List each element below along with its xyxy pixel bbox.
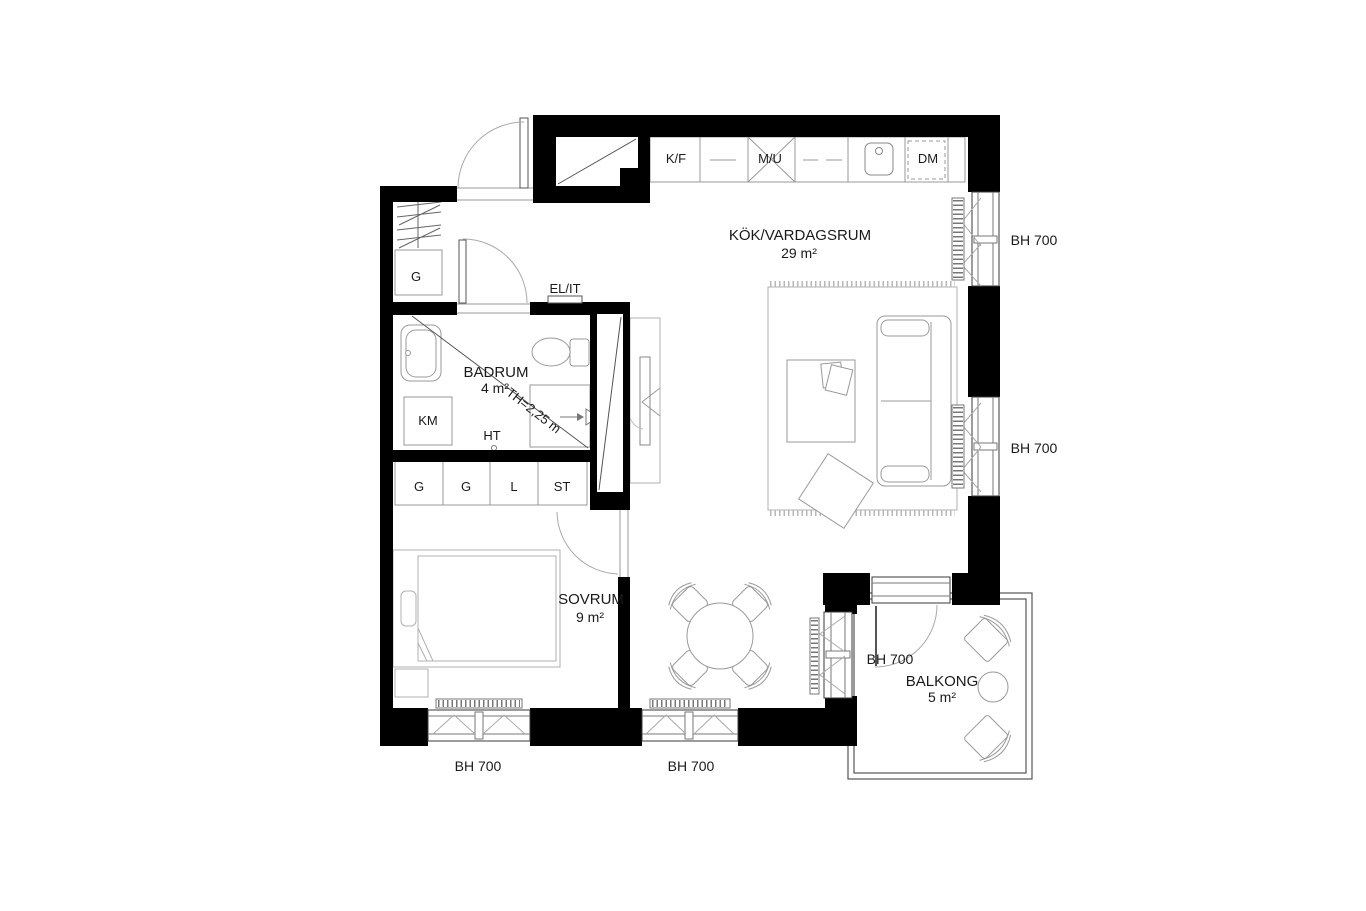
toilet-bowl-icon bbox=[532, 338, 570, 366]
linen-closet-label: L bbox=[510, 479, 517, 494]
kitchen-living-name: KÖK/VARDAGSRUM bbox=[729, 226, 871, 244]
window-dining bbox=[642, 699, 738, 741]
window-bedroom bbox=[428, 699, 530, 741]
tv-bench bbox=[629, 318, 660, 483]
balcony-table bbox=[978, 672, 1008, 702]
bedside-table bbox=[395, 669, 428, 697]
ventilation-shaft-top bbox=[556, 137, 638, 186]
balcony-name: BALKONG bbox=[906, 673, 979, 690]
cleaning-closet-label: ST bbox=[554, 479, 571, 494]
faucet-icon bbox=[876, 148, 883, 155]
sofa bbox=[877, 316, 951, 486]
window-mullion bbox=[974, 443, 997, 450]
floor-plan: KÖK/VARDAGSRUM 29 m² SOVRUM 9 m² BADRUM … bbox=[0, 0, 1366, 911]
bed-pillow bbox=[401, 591, 416, 626]
door-frame bbox=[872, 577, 950, 603]
bathroom-name: BADRUM bbox=[463, 364, 528, 381]
bh700-label-bottom-1: BH 700 bbox=[455, 758, 502, 774]
coffee-table bbox=[787, 360, 855, 442]
window-right-1 bbox=[952, 192, 999, 286]
towel-dryer-label: HT bbox=[483, 428, 500, 443]
hall-wardrobe-label: G bbox=[411, 269, 421, 284]
fridge-freezer-label: K/F bbox=[666, 151, 686, 166]
sofa-armrest-bottom bbox=[881, 466, 929, 482]
electrical-cabinet-label: EL/IT bbox=[549, 281, 580, 296]
window-right-2 bbox=[952, 397, 999, 496]
bedroom-name: SOVRUM bbox=[558, 591, 624, 608]
shaft-notch bbox=[620, 168, 638, 186]
window-mullion bbox=[475, 712, 483, 739]
bh700-label-right-2: BH 700 bbox=[1011, 440, 1058, 456]
window-nook bbox=[810, 612, 852, 698]
bh700-label-bottom-2: BH 700 bbox=[668, 758, 715, 774]
bed bbox=[393, 550, 560, 667]
ventilation-shaft-column bbox=[597, 314, 623, 492]
dishwasher-label: DM bbox=[918, 151, 938, 166]
tv-icon bbox=[640, 357, 650, 445]
dining-table bbox=[687, 603, 753, 669]
window-mullion bbox=[685, 712, 693, 739]
door-leaf bbox=[459, 240, 466, 303]
washing-machine-label: KM bbox=[418, 413, 438, 428]
balcony-area: 5 m² bbox=[928, 689, 956, 705]
wardrobe-1-label: G bbox=[414, 479, 424, 494]
bh700-label-right-1: BH 700 bbox=[1011, 232, 1058, 248]
door-leaf bbox=[520, 118, 528, 188]
bed-mattress bbox=[418, 556, 556, 661]
bathtub-faucet-icon bbox=[406, 351, 411, 356]
window-mullion bbox=[826, 651, 850, 658]
sofa-armrest-top bbox=[881, 320, 929, 336]
wardrobe-2-label: G bbox=[461, 479, 471, 494]
electrical-cabinet-box bbox=[548, 296, 582, 303]
bedroom-area: 9 m² bbox=[576, 609, 604, 625]
bh700-label-balcony: BH 700 bbox=[867, 651, 914, 667]
toilet-tank-icon bbox=[570, 339, 589, 366]
kitchen-living-area: 29 m² bbox=[781, 245, 817, 261]
microwave-oven-label: M/U bbox=[758, 151, 782, 166]
